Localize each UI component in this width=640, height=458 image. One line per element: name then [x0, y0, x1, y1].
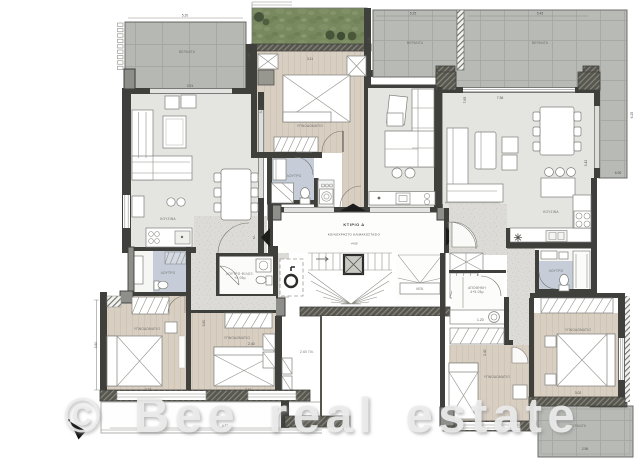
svg-text:ΥΠΝΟΔΩΜΑΤΙΟ: ΥΠΝΟΔΩΜΑΤΙΟ [134, 327, 161, 331]
svg-text:+4.00: +4.00 [351, 242, 358, 246]
svg-text:3.40: 3.40 [483, 349, 487, 356]
svg-text:ΒΕΡΑΝΤΑ: ΒΕΡΑΝΤΑ [179, 50, 196, 54]
svg-text:2: 2 [253, 236, 255, 240]
svg-text:2.40: 2.40 [367, 37, 371, 44]
svg-text:2.60 ΠΛ.: 2.60 ΠΛ. [300, 350, 314, 354]
svg-text:ΛΟΥΤΡΟ: ΛΟΥΤΡΟ [549, 269, 564, 273]
svg-text:ΛΟΥΤΡΟ: ΛΟΥΤΡΟ [161, 271, 176, 275]
svg-text:ΥΠΝΟΔΩΜΑΤΙΟ: ΥΠΝΟΔΩΜΑΤΙΟ [224, 336, 251, 340]
svg-text:ΒΕΡΑΝΤΑ: ΒΕΡΑΝΤΑ [532, 41, 549, 45]
svg-text:3.11: 3.11 [307, 57, 313, 61]
svg-text:2.90: 2.90 [247, 53, 251, 60]
svg-text:6.05: 6.05 [615, 171, 622, 175]
svg-text:5.20: 5.20 [182, 14, 189, 18]
svg-text:4+5.05μ: 4+5.05μ [470, 290, 483, 294]
svg-text:ΥΠΝΟΔΩΜΑΤΙΟ: ΥΠΝΟΔΩΜΑΤΙΟ [565, 328, 592, 332]
svg-text:3.91: 3.91 [187, 84, 194, 88]
svg-text:7.36: 7.36 [497, 96, 504, 100]
svg-text:7.65: 7.65 [463, 97, 467, 104]
svg-text:ΛΕΒ.: ΛΕΒ. [416, 287, 424, 291]
svg-text:© Bee real estate: © Bee real estate [64, 389, 580, 443]
svg-text:ΒΕΡΑΝΤΑ: ΒΕΡΑΝΤΑ [407, 41, 424, 45]
svg-text:3.40: 3.40 [259, 107, 263, 114]
svg-text:5.45: 5.45 [537, 12, 544, 16]
svg-text:6.25: 6.25 [630, 112, 634, 119]
svg-text:3.50: 3.50 [202, 320, 206, 327]
svg-text:ΚΤΙΡΙΟ Δ: ΚΤΙΡΙΟ Δ [343, 222, 364, 227]
svg-text:ΚΟΥΖΙΝΑ: ΚΟΥΖΙΝΑ [543, 210, 559, 214]
svg-text:2.40: 2.40 [248, 342, 255, 346]
svg-text:ΥΠΝΟΔΩΜΑΤΙΟ: ΥΠΝΟΔΩΜΑΤΙΟ [297, 124, 324, 128]
svg-text:ΥΠΝΟΔΩΜΑΤΙΟ: ΥΠΝΟΔΩΜΑΤΙΟ [484, 375, 511, 379]
svg-text:3.60: 3.60 [94, 342, 98, 349]
svg-text:2.96: 2.96 [582, 447, 589, 451]
svg-text:1.20: 1.20 [477, 318, 484, 322]
svg-text:ΚΟΙΝΟΧΡΗΣΤΟ ΚΛΙΜΑΚΟΣΤΑΣΙΟ: ΚΟΙΝΟΧΡΗΣΤΟ ΚΛΙΜΑΚΟΣΤΑΣΙΟ [328, 233, 381, 237]
svg-text:3.42: 3.42 [584, 160, 588, 167]
svg-text:ΚΟΥΖΙΝΑ: ΚΟΥΖΙΝΑ [160, 217, 176, 221]
svg-text:5.25: 5.25 [410, 12, 417, 16]
svg-text:ΛΟΥΤΡΟ: ΛΟΥΤΡΟ [287, 174, 302, 178]
svg-text:+4.05μ: +4.05μ [234, 276, 245, 280]
